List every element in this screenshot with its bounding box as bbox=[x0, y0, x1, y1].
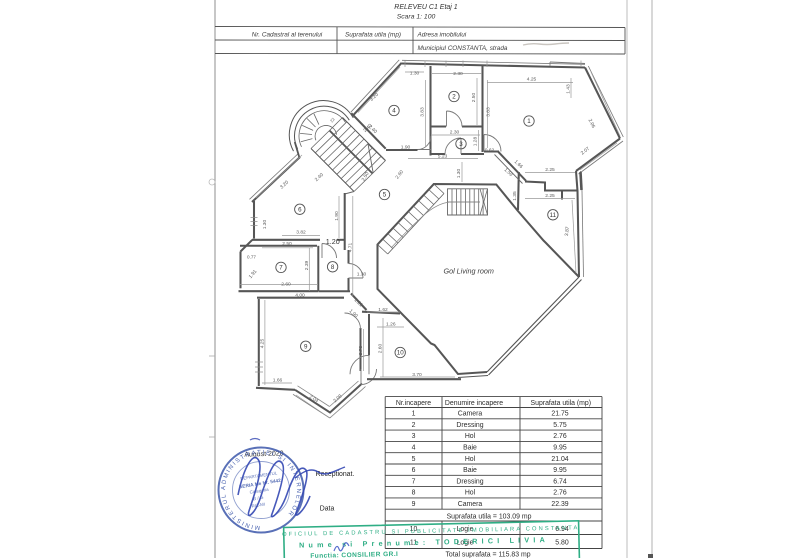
svg-text:Dressing: Dressing bbox=[456, 478, 483, 485]
svg-text:Functia: CONSILIER GR.I: Functia: CONSILIER GR.I bbox=[310, 551, 398, 558]
svg-text:Hol: Hol bbox=[465, 433, 476, 440]
svg-text:0.77: 0.77 bbox=[247, 255, 256, 260]
svg-text:21.75: 21.75 bbox=[551, 411, 568, 418]
svg-text:3.82: 3.82 bbox=[296, 230, 306, 236]
svg-text:6: 6 bbox=[412, 467, 416, 474]
svg-text:3.70: 3.70 bbox=[412, 372, 422, 378]
svg-text:3.20: 3.20 bbox=[369, 92, 380, 103]
svg-text:1.59: 1.59 bbox=[503, 167, 514, 178]
svg-text:11: 11 bbox=[550, 212, 557, 219]
svg-text:1.30: 1.30 bbox=[410, 70, 420, 76]
svg-text:6: 6 bbox=[298, 207, 302, 214]
svg-text:1.30: 1.30 bbox=[262, 219, 268, 229]
svg-text:2.25: 2.25 bbox=[545, 193, 555, 199]
svg-text:2.50: 2.50 bbox=[282, 241, 292, 247]
svg-text:9: 9 bbox=[304, 344, 308, 351]
svg-text:Receptionat.: Receptionat. bbox=[316, 471, 355, 478]
svg-text:6.74: 6.74 bbox=[553, 478, 567, 485]
svg-text:1.30: 1.30 bbox=[357, 271, 367, 277]
svg-text:1.90: 1.90 bbox=[334, 211, 340, 221]
svg-text:2.39: 2.39 bbox=[304, 260, 310, 270]
svg-text:Camera: Camera bbox=[458, 411, 483, 418]
svg-text:Nume si Prenume: TODERICI LIVI: Nume si Prenume: TODERICI LIVIA bbox=[299, 535, 549, 550]
svg-text:Dressing: Dressing bbox=[456, 422, 483, 429]
svg-text:2.76: 2.76 bbox=[553, 490, 567, 497]
svg-text:Scara 1: 100: Scara 1: 100 bbox=[397, 14, 436, 21]
svg-text:9.95: 9.95 bbox=[553, 467, 567, 474]
svg-text:Adresa imobilului: Adresa imobilului bbox=[417, 32, 467, 39]
svg-text:2.60: 2.60 bbox=[394, 169, 405, 180]
svg-text:4: 4 bbox=[412, 445, 416, 452]
svg-text:Camera: Camera bbox=[458, 501, 483, 508]
svg-text:Total suprafata = 115.83 mp: Total suprafata = 115.83 mp bbox=[445, 551, 530, 558]
svg-text:4.00: 4.00 bbox=[295, 292, 305, 298]
svg-text:1: 1 bbox=[527, 118, 531, 125]
svg-text:Municipiul CONSTANTA, strada: Municipiul CONSTANTA, strada bbox=[418, 45, 508, 52]
svg-text:1.91: 1.91 bbox=[248, 269, 259, 280]
svg-text:2.60: 2.60 bbox=[281, 281, 291, 287]
svg-text:2.07: 2.07 bbox=[580, 146, 591, 157]
svg-text:5.80: 5.80 bbox=[555, 540, 569, 547]
svg-text:3: 3 bbox=[459, 141, 463, 148]
svg-text:22: 22 bbox=[329, 116, 336, 123]
svg-text:Baie: Baie bbox=[463, 445, 477, 452]
svg-text:RELEVEU C1 Etaj 1: RELEVEU C1 Etaj 1 bbox=[394, 4, 458, 11]
svg-text:2.25: 2.25 bbox=[545, 167, 555, 173]
svg-text:Gol Living room: Gol Living room bbox=[444, 267, 494, 276]
svg-text:8: 8 bbox=[412, 490, 416, 497]
svg-text:Hol: Hol bbox=[465, 490, 476, 497]
svg-text:Suprafata utila (mp): Suprafata utila (mp) bbox=[345, 32, 401, 39]
svg-text:2.40: 2.40 bbox=[314, 172, 325, 183]
svg-text:3.83: 3.83 bbox=[485, 107, 491, 117]
svg-text:Data: Data bbox=[320, 506, 335, 513]
svg-text:5.23: 5.23 bbox=[438, 153, 448, 159]
svg-text:22.39: 22.39 bbox=[551, 501, 568, 508]
svg-text:Hol: Hol bbox=[465, 456, 476, 463]
svg-text:4.71: 4.71 bbox=[348, 242, 354, 252]
svg-text:7: 7 bbox=[279, 265, 283, 272]
svg-text:3.20: 3.20 bbox=[279, 179, 290, 190]
svg-text:1.90: 1.90 bbox=[401, 144, 411, 150]
svg-text:Suprafata utila (mp): Suprafata utila (mp) bbox=[531, 400, 592, 407]
svg-text:0.62: 0.62 bbox=[485, 148, 495, 154]
svg-text:4.25: 4.25 bbox=[527, 77, 537, 83]
svg-text:2.06: 2.06 bbox=[587, 118, 597, 129]
svg-text:3.87: 3.87 bbox=[564, 226, 571, 236]
svg-text:Suprafata utila = 103.09 mp: Suprafata utila = 103.09 mp bbox=[447, 513, 532, 520]
svg-text:1.26: 1.26 bbox=[386, 322, 396, 328]
svg-text:5: 5 bbox=[412, 456, 416, 463]
svg-text:2.78: 2.78 bbox=[358, 345, 364, 355]
svg-text:1.35: 1.35 bbox=[512, 191, 518, 201]
svg-text:1.62: 1.62 bbox=[378, 307, 388, 313]
svg-text:7: 7 bbox=[412, 478, 416, 485]
svg-text:2.30: 2.30 bbox=[453, 71, 463, 77]
svg-text:1.90: 1.90 bbox=[348, 308, 359, 319]
svg-text:1: 1 bbox=[412, 411, 416, 418]
svg-text:3: 3 bbox=[412, 433, 416, 440]
svg-text:4: 4 bbox=[392, 108, 396, 115]
svg-text:Denumire incapere: Denumire incapere bbox=[445, 400, 503, 407]
svg-text:9.95: 9.95 bbox=[553, 445, 567, 452]
svg-text:10: 10 bbox=[397, 350, 404, 357]
svg-text:2.30: 2.30 bbox=[450, 129, 460, 135]
svg-text:1.20: 1.20 bbox=[326, 237, 340, 246]
svg-text:1.66: 1.66 bbox=[273, 377, 283, 383]
svg-text:2.50: 2.50 bbox=[471, 92, 477, 102]
svg-text:8: 8 bbox=[331, 264, 335, 271]
svg-text:Nr. Cadastral al terenului: Nr. Cadastral al terenului bbox=[252, 31, 323, 38]
svg-text:1.43: 1.43 bbox=[565, 84, 571, 94]
svg-text:1.30: 1.30 bbox=[456, 168, 462, 178]
svg-text:2.40: 2.40 bbox=[367, 124, 378, 135]
svg-text:Nr.incapere: Nr.incapere bbox=[396, 400, 431, 407]
svg-text:2.76: 2.76 bbox=[553, 433, 567, 440]
svg-text:1.28: 1.28 bbox=[473, 136, 479, 146]
svg-text:9: 9 bbox=[412, 501, 416, 508]
svg-text:5.75: 5.75 bbox=[553, 422, 567, 429]
svg-text:2.60: 2.60 bbox=[378, 343, 384, 353]
svg-text:3.83: 3.83 bbox=[420, 107, 426, 117]
svg-text:Baie: Baie bbox=[463, 467, 477, 474]
svg-text:4.25: 4.25 bbox=[259, 338, 265, 348]
svg-text:5: 5 bbox=[383, 192, 387, 199]
svg-text:2: 2 bbox=[412, 422, 416, 429]
svg-text:2: 2 bbox=[452, 94, 456, 101]
svg-text:21.04: 21.04 bbox=[551, 456, 568, 463]
